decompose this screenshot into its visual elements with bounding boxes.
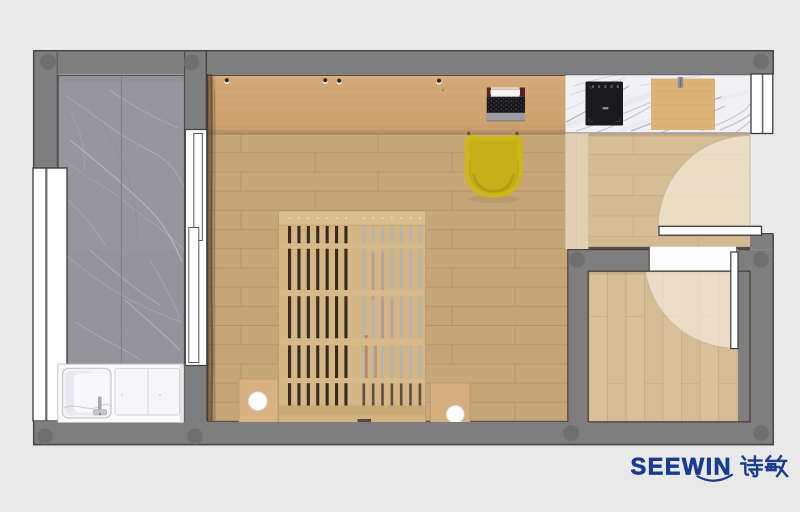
svg-text:SEEWIN: SEEWIN <box>631 455 732 481</box>
